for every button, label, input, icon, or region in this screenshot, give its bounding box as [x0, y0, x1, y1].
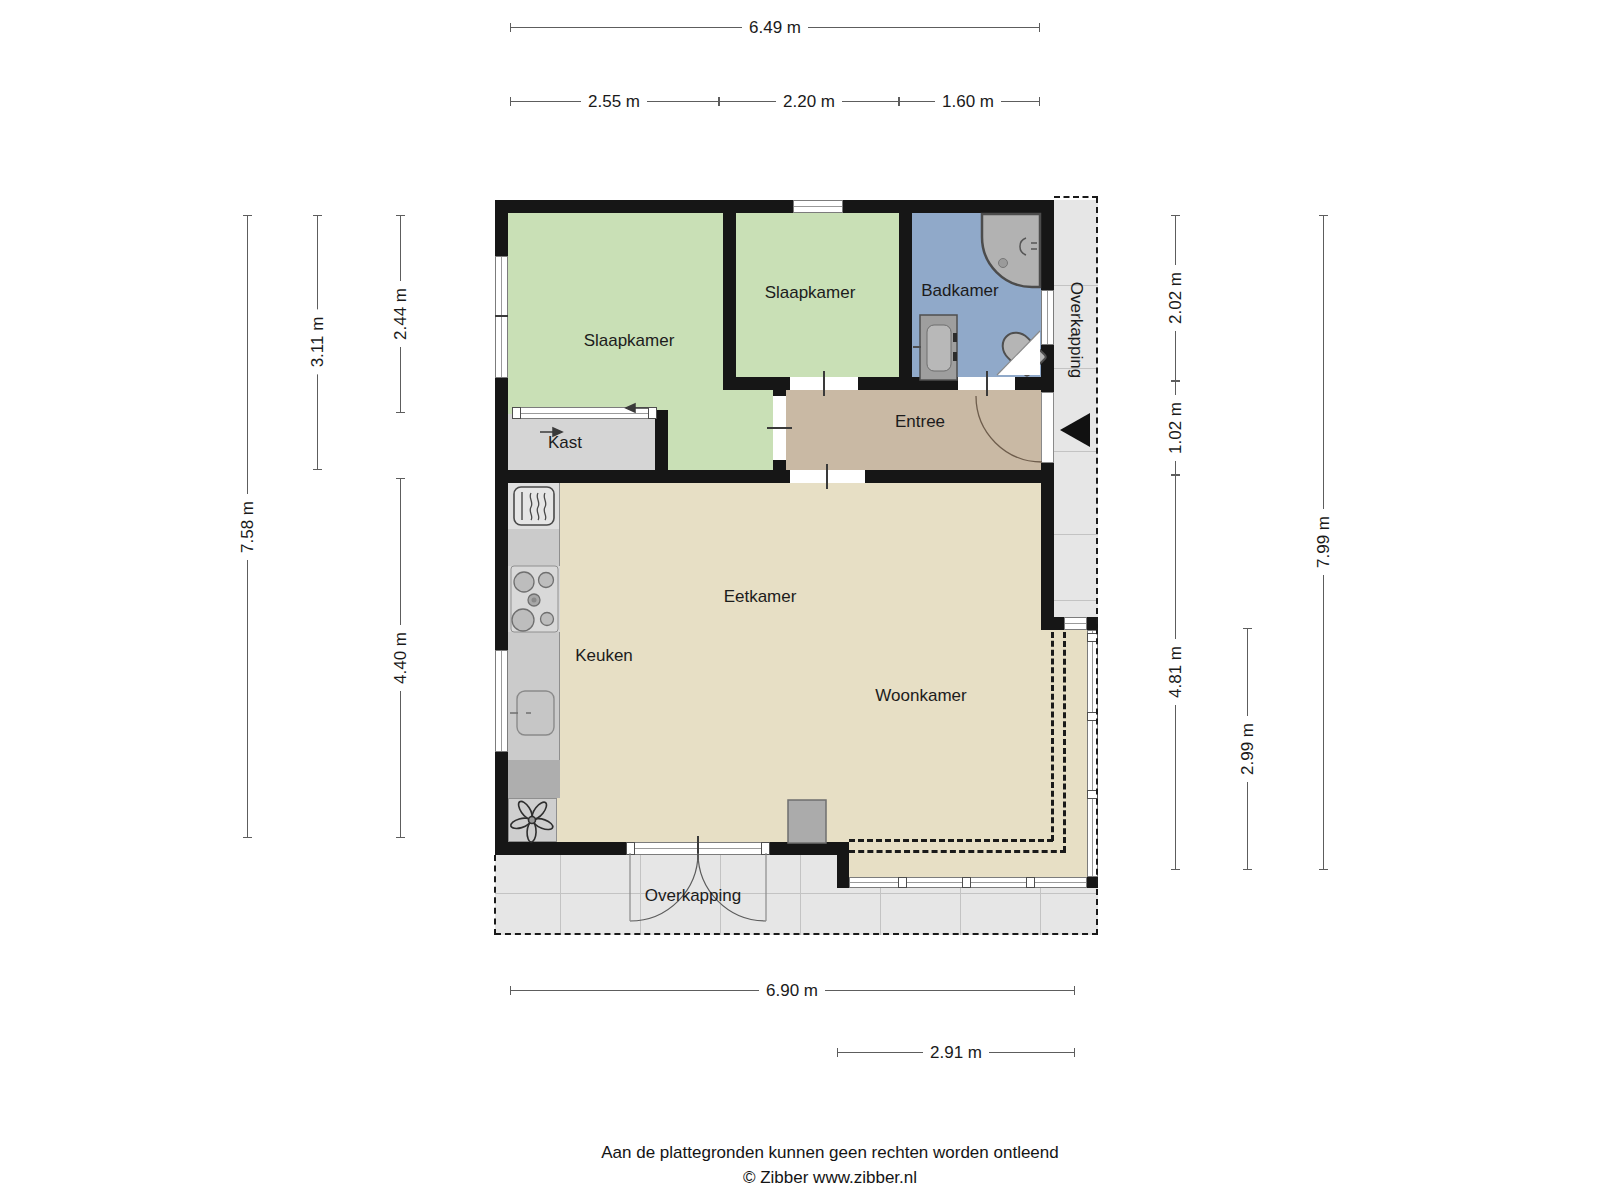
dim-label-left-total: 7.58 m: [238, 494, 258, 560]
dim-label-right-seg1: 2.02 m: [1166, 265, 1186, 331]
dim-label-left-seg1: 3.11 m: [308, 310, 328, 375]
dim-label-right-seg2: 1.02 m: [1166, 395, 1186, 461]
fan-icon: [510, 799, 555, 842]
dim-label-bottom-total: 6.90 m: [759, 981, 825, 1001]
room-label-kitchen: Keuken: [575, 646, 633, 666]
dim-label-right-seg4: 2.99 m: [1238, 716, 1258, 782]
dim-label-right-seg3: 4.81 m: [1166, 639, 1186, 705]
room-label-closet: Kast: [548, 433, 582, 453]
dim-label-top-seg3: 1.60 m: [935, 92, 1001, 112]
fixtures-layer: [0, 0, 1600, 1200]
dim-label-top-seg1: 2.55 m: [581, 92, 647, 112]
dim-label-top-seg2: 2.20 m: [776, 92, 842, 112]
dim-label-left-seg3: 4.40 m: [391, 625, 411, 691]
sliding-door-arrow-icon: [540, 404, 648, 436]
footer-credit: © Zibber www.zibber.nl: [743, 1168, 917, 1188]
footer-disclaimer: Aan de plattegronden kunnen geen rechten…: [601, 1143, 1058, 1163]
dim-label-right-total: 7.99 m: [1314, 509, 1334, 575]
dim-label-left-seg2: 2.44 m: [391, 281, 411, 347]
room-label-bedroom-middle: Slaapkamer: [765, 283, 856, 303]
room-label-bathroom: Badkamer: [921, 281, 998, 301]
room-label-bedroom-left: Slaapkamer: [584, 331, 675, 351]
room-label-canopy-right: Overkapping: [1066, 282, 1086, 378]
washbasin-icon: [913, 315, 957, 380]
dim-label-bottom-seg1: 2.91 m: [923, 1043, 989, 1063]
floorplan-canvas: Slaapkamer Slaapkamer Badkamer Kast Entr…: [0, 0, 1600, 1200]
kitchen-sink-icon: [510, 691, 554, 735]
room-label-entry: Entree: [895, 412, 945, 432]
dim-label-top-total: 6.49 m: [742, 18, 808, 38]
entrance-arrow-icon: [1060, 413, 1090, 447]
room-label-living: Woonkamer: [875, 686, 966, 706]
room-label-dining: Eetkamer: [724, 587, 797, 607]
shower-icon: [982, 214, 1040, 287]
fireplace-icon: [788, 800, 826, 843]
stove-icon: [511, 566, 558, 632]
oven-icon: [514, 487, 554, 525]
room-label-canopy-bottom: Overkapping: [645, 886, 741, 906]
front-door-swing: [976, 396, 1042, 462]
